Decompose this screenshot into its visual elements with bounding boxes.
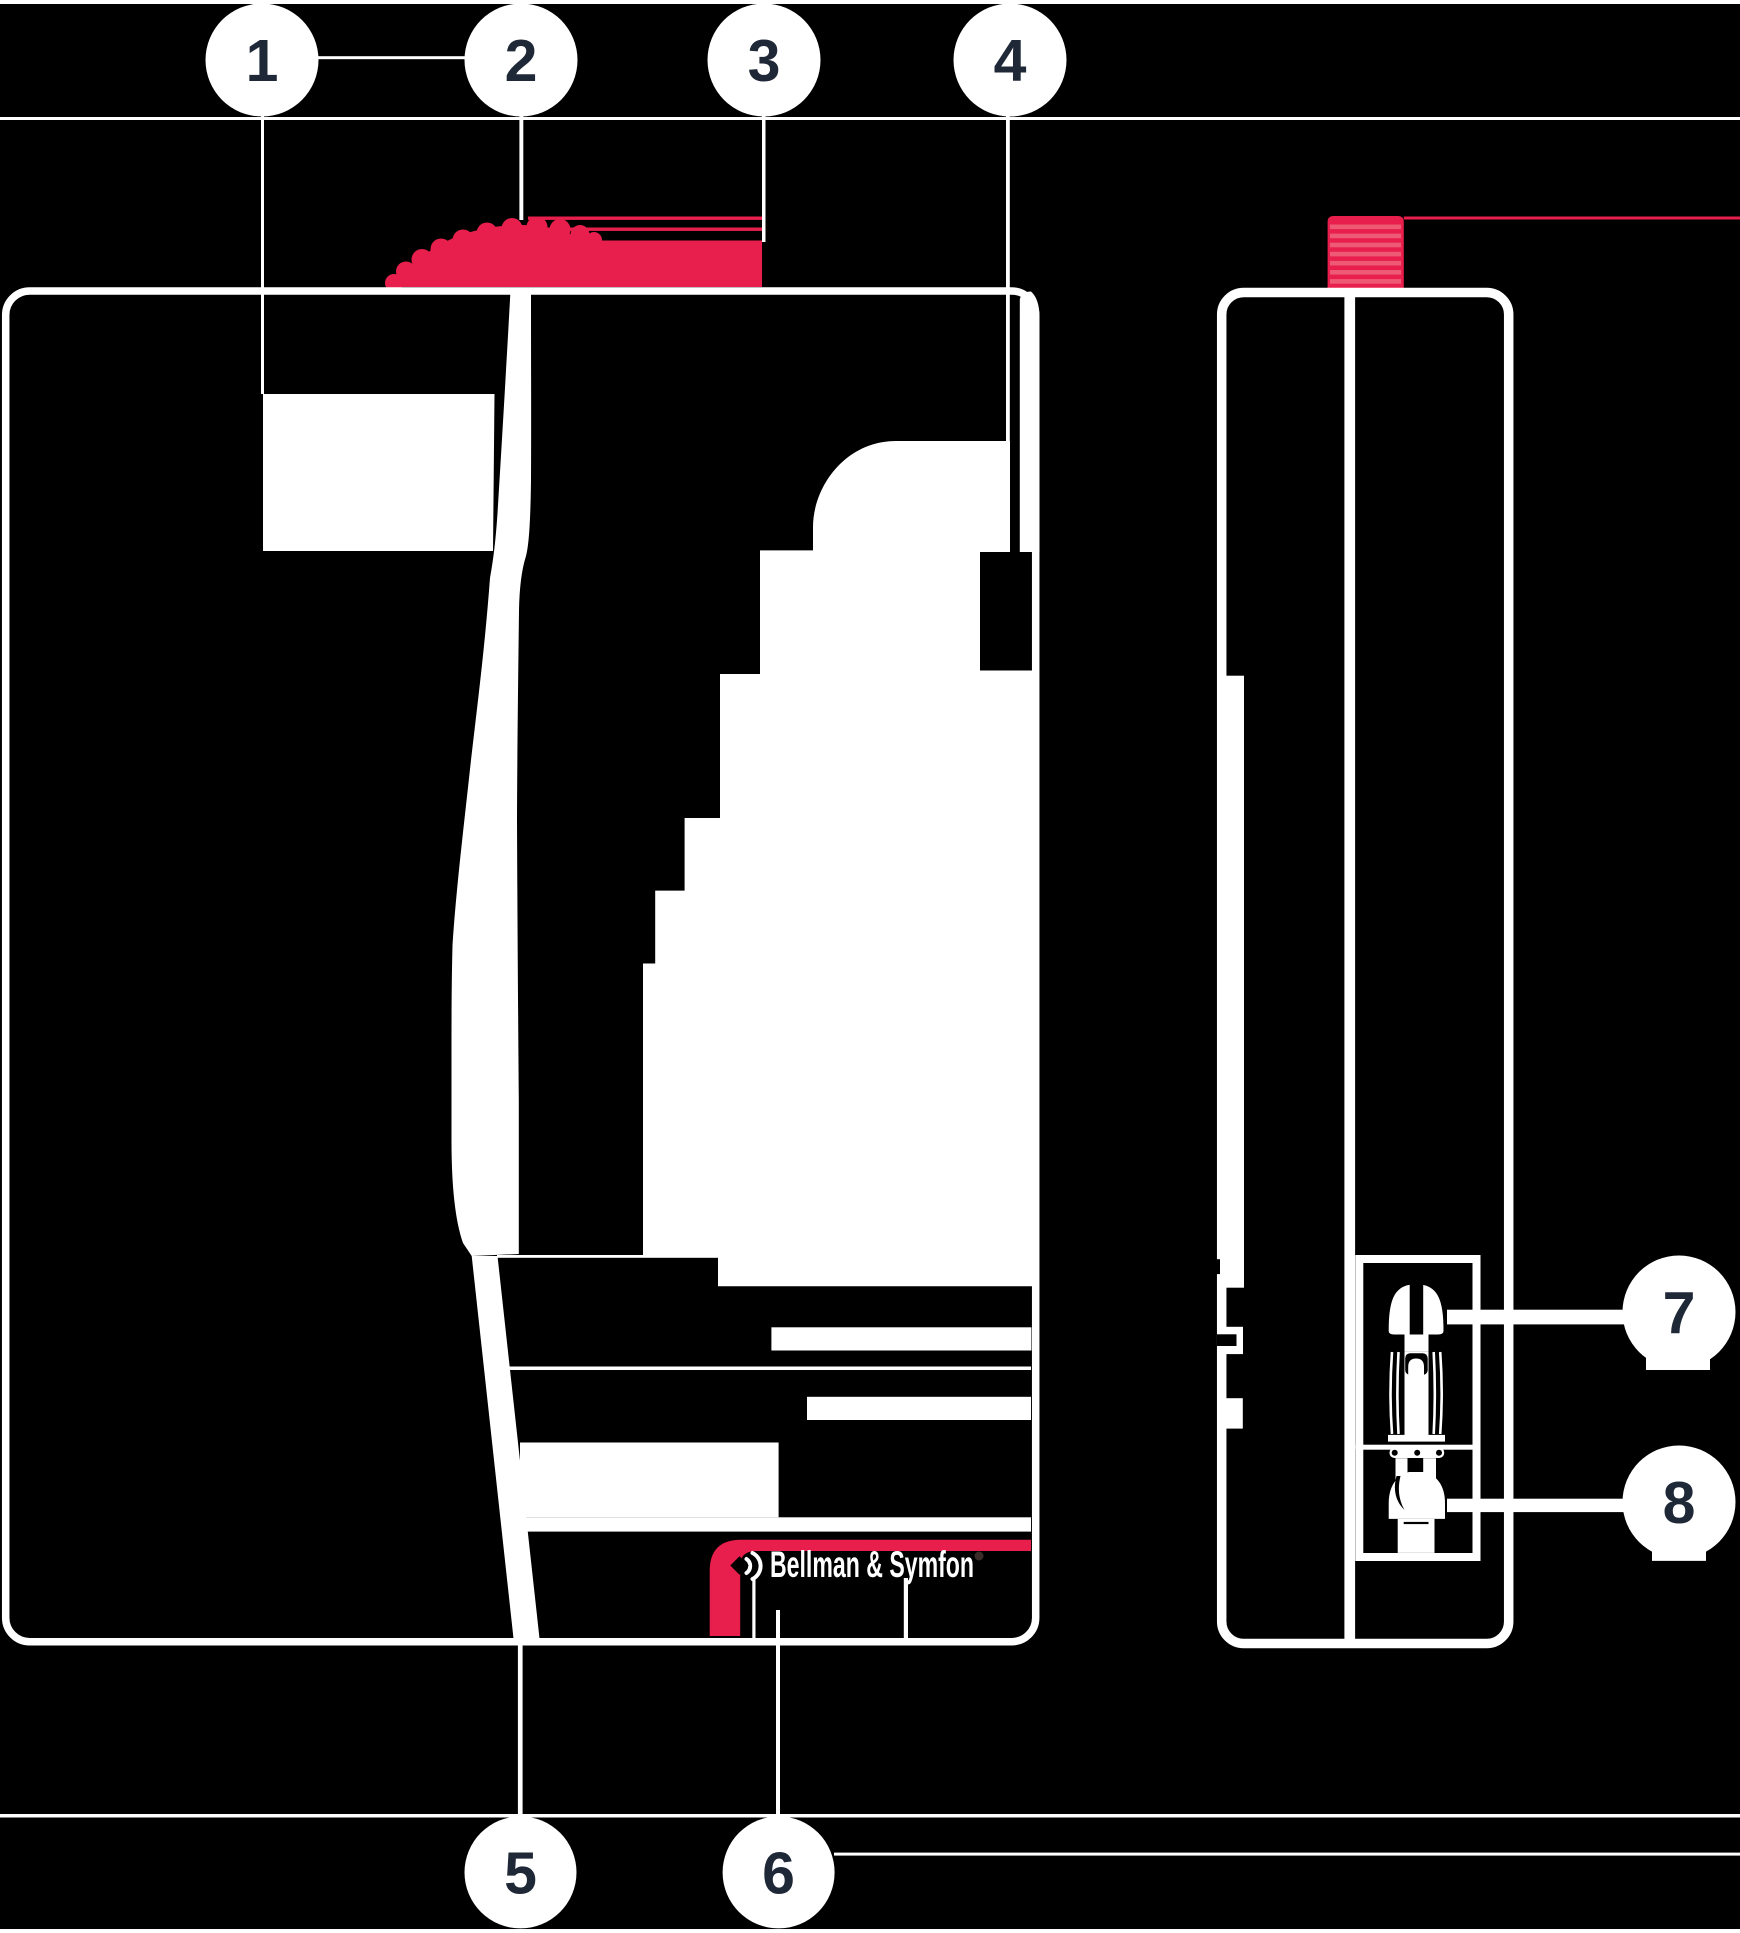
svg-text:2: 2 [505, 28, 538, 94]
svg-text:1: 1 [246, 28, 279, 94]
svg-text:8: 8 [1663, 1470, 1696, 1536]
svg-text:3: 3 [748, 28, 781, 94]
svg-text:7: 7 [1663, 1280, 1696, 1346]
svg-text:5: 5 [504, 1840, 537, 1906]
svg-text:6: 6 [762, 1840, 795, 1906]
svg-text:Bellman & Symfon: Bellman & Symfon [770, 1544, 974, 1585]
svg-text:4: 4 [994, 28, 1027, 94]
